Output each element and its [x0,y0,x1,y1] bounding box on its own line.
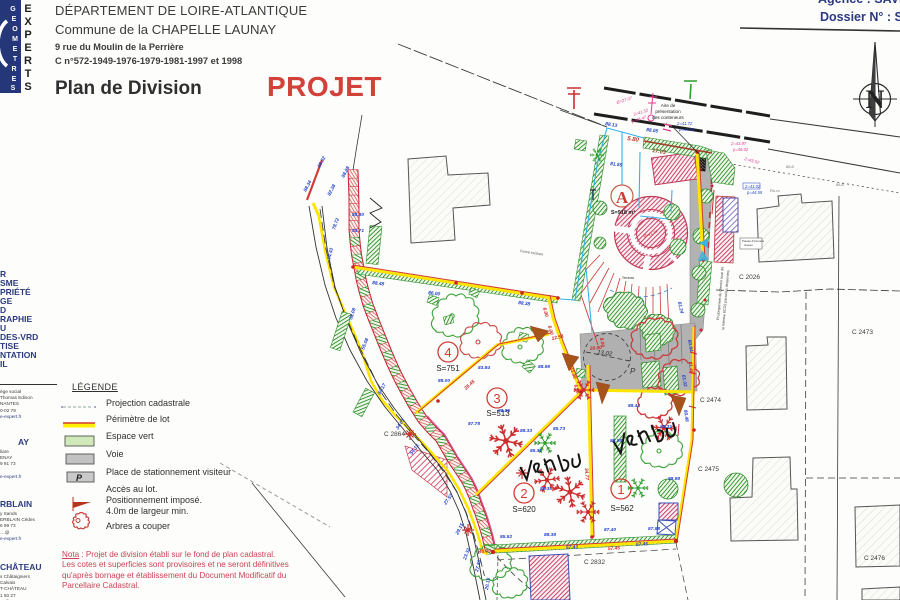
svg-text:p=44.88: p=44.88 [678,127,695,132]
svg-text:2=43.97: 2=43.97 [730,141,747,146]
svg-text:E: E [24,42,31,54]
svg-text:34.77: 34.77 [583,468,590,481]
svg-text:81.55: 81.55 [610,161,623,169]
svg-text:S=620: S=620 [512,505,536,514]
svg-text:S: S [24,81,31,93]
svg-text:2=41.02: 2=41.02 [744,184,761,189]
svg-text:X: X [24,16,32,28]
svg-text:des conteneurs: des conteneurs [652,115,684,120]
svg-text:82.38: 82.38 [326,183,337,197]
svg-text:P: P [76,473,83,483]
svg-text:88.31: 88.31 [660,424,672,430]
svg-text:C 2473: C 2473 [852,329,873,336]
svg-text:11.40: 11.40 [687,362,694,374]
svg-text:Ro.ro: Ro.ro [770,188,781,193]
svg-text:G: G [10,6,16,13]
svg-text:E: E [13,46,18,53]
svg-text:E: E [12,76,17,83]
svg-text:88.05: 88.05 [646,127,659,135]
svg-text:25.45: 25.45 [463,379,477,392]
svg-text:87.40: 87.40 [604,527,616,533]
svg-text:40.00: 40.00 [478,548,492,555]
svg-text:1: 1 [617,482,624,497]
svg-text:55.08: 55.08 [360,337,370,351]
svg-text:88.80: 88.80 [352,212,364,218]
svg-text:C 2474: C 2474 [700,397,721,404]
svg-text:3: 3 [493,391,500,406]
svg-text:88.38: 88.38 [540,486,552,492]
svg-text:M: M [12,36,18,43]
svg-text:P: P [630,367,636,376]
svg-text:O: O [12,26,18,33]
svg-text:57.43: 57.43 [566,544,579,551]
svg-text:C 2476: C 2476 [864,555,885,562]
svg-text:S=562: S=562 [610,504,634,513]
svg-text:88.44: 88.44 [628,403,640,409]
svg-text:88.8: 88.8 [786,164,795,169]
svg-text:83.84: 83.84 [478,365,490,371]
svg-text:78.72: 78.72 [331,217,341,231]
svg-text:T: T [25,68,32,80]
svg-text:88.52: 88.52 [316,155,327,169]
svg-text:*₁₀: *₁₀ [666,122,671,126]
svg-text:2=41.72: 2=41.72 [676,121,693,126]
svg-text:C 2475: C 2475 [698,466,719,473]
svg-text:R: R [11,66,16,73]
svg-text:88.38: 88.38 [518,300,531,308]
svg-text:2=43.52: 2=43.52 [743,156,761,165]
svg-text:85.52: 85.52 [500,534,512,540]
svg-text:E: E [12,16,17,23]
svg-text:E: E [24,3,31,15]
svg-text:T: T [13,56,18,63]
svg-text:Ø=27.07: Ø=27.07 [615,95,634,105]
svg-text:20.15: 20.15 [484,577,492,591]
svg-text:5.80: 5.80 [627,136,640,144]
svg-text:88.8: 88.8 [836,182,845,187]
svg-text:88.98: 88.98 [538,364,550,370]
svg-text:N: N [866,85,885,114]
svg-text:p=46.02: p=46.02 [732,147,749,152]
svg-text:87.98: 87.98 [648,526,660,532]
svg-text:57.45: 57.45 [608,545,621,552]
svg-text:88.00: 88.00 [438,378,450,384]
svg-text:88.98: 88.98 [610,438,622,444]
svg-text:57.45: 57.45 [636,541,649,548]
svg-text:p=44.55: p=44.55 [746,190,763,195]
svg-text:88.98: 88.98 [668,476,680,482]
svg-text:87.78: 87.78 [468,421,480,427]
svg-text:C 2864: C 2864 [384,431,405,438]
svg-text:Fossé existant: Fossé existant [520,249,544,257]
svg-text:S=918 m²: S=918 m² [611,209,635,216]
svg-text:S=751: S=751 [436,364,460,373]
svg-text:6.00: 6.00 [541,307,549,318]
svg-text:88.85: 88.85 [498,408,510,414]
svg-text:Aire de: Aire de [661,103,676,108]
svg-text:88.38: 88.38 [544,532,556,538]
svg-text:85.38: 85.38 [530,448,542,454]
svg-text:88.33: 88.33 [520,428,532,434]
svg-text:80.48: 80.48 [682,409,690,422]
svg-text:17.03: 17.03 [652,148,667,156]
svg-text:88.48: 88.48 [372,280,385,288]
svg-text:S: S [11,85,16,92]
svg-text:85.73: 85.73 [553,426,565,432]
svg-text:2: 2 [520,486,527,501]
svg-text:A: A [616,188,629,207]
svg-text:4: 4 [444,345,451,360]
svg-text:C 2832: C 2832 [584,559,605,566]
svg-text:R: R [24,55,32,67]
svg-text:réseau: réseau [744,243,753,247]
svg-text:C 2026: C 2026 [739,274,760,281]
svg-text:61.24: 61.24 [676,301,684,314]
svg-text:88.71: 88.71 [352,228,364,234]
svg-text:présentation: présentation [655,109,681,114]
svg-text:Terrasse: Terrasse [622,276,634,280]
svg-text:P: P [24,29,31,41]
